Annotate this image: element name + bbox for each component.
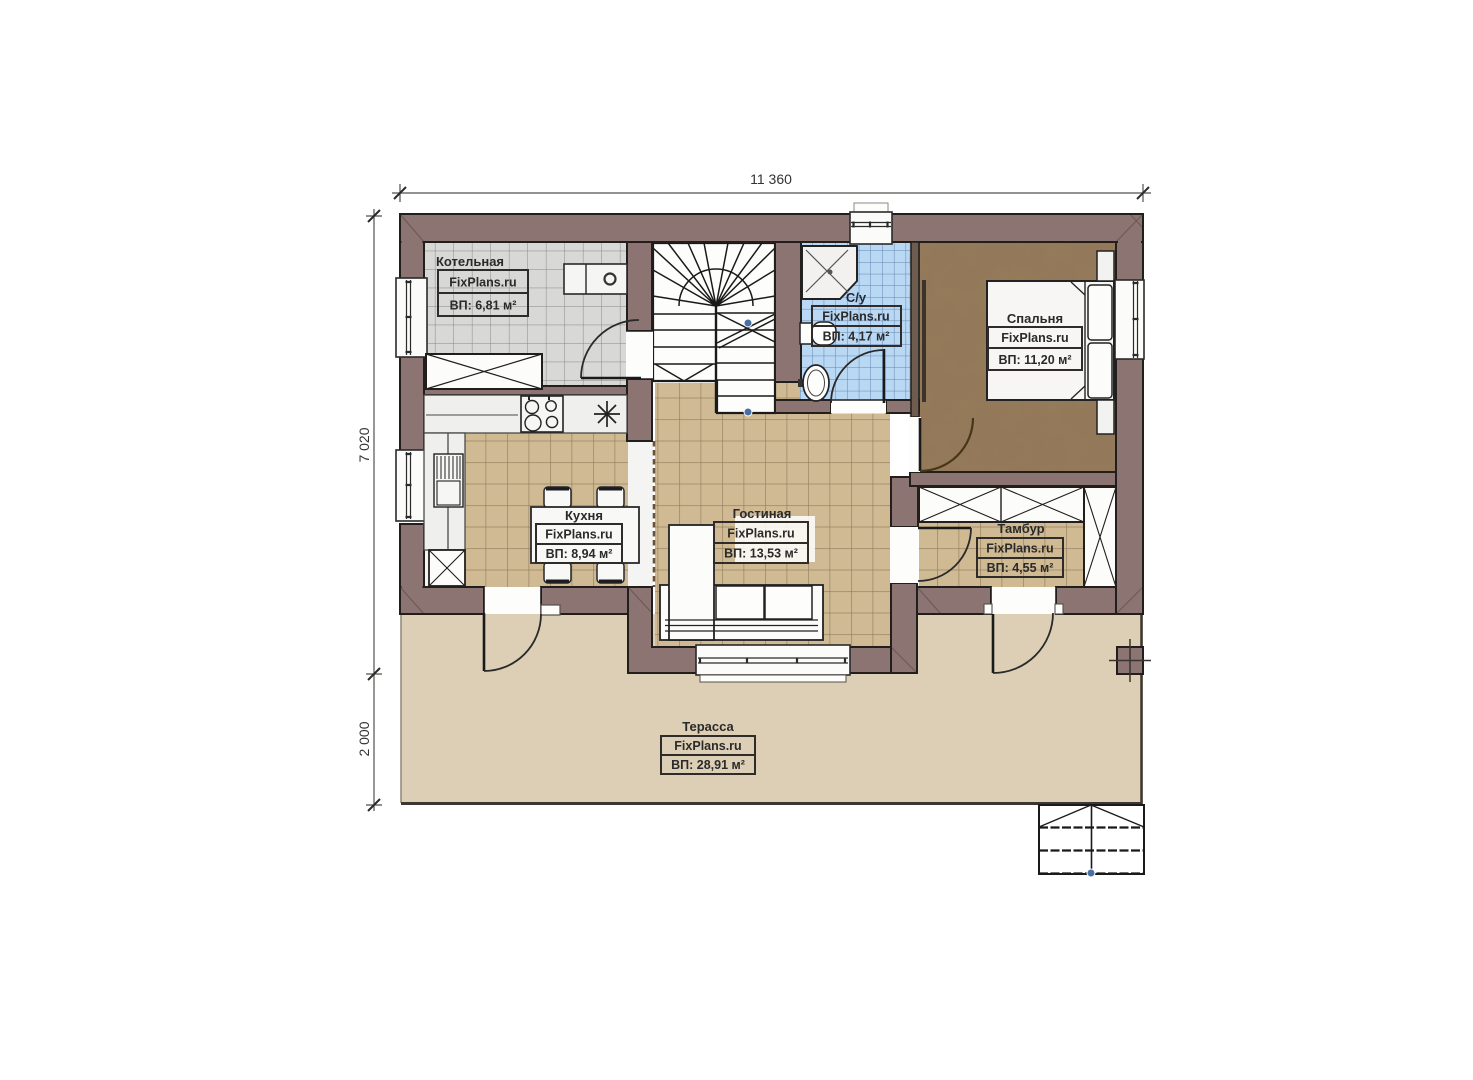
svg-text:Спальня: Спальня [1007,311,1063,326]
svg-text:ВП: 4,17 м²: ВП: 4,17 м² [823,330,890,344]
svg-text:7 020: 7 020 [356,427,372,462]
svg-text:ВП: 6,81 м²: ВП: 6,81 м² [450,299,517,313]
svg-text:FixPlans.ru: FixPlans.ru [822,310,889,324]
svg-text:FixPlans.ru: FixPlans.ru [727,527,794,541]
svg-text:Котельная: Котельная [436,254,504,269]
svg-text:ВП: 8,94 м²: ВП: 8,94 м² [546,547,613,561]
svg-text:FixPlans.ru: FixPlans.ru [1001,331,1068,345]
svg-text:Тамбур: Тамбур [997,521,1044,536]
svg-text:FixPlans.ru: FixPlans.ru [545,528,612,542]
svg-text:2 000: 2 000 [356,721,372,756]
svg-text:Гостиная: Гостиная [733,506,792,521]
svg-text:С/у: С/у [846,290,867,305]
svg-text:Кухня: Кухня [565,508,603,523]
svg-text:FixPlans.ru: FixPlans.ru [986,542,1053,556]
svg-text:FixPlans.ru: FixPlans.ru [674,739,741,753]
svg-text:ВП: 11,20 м²: ВП: 11,20 м² [998,353,1071,367]
svg-text:Терасса: Терасса [682,719,734,734]
svg-text:FixPlans.ru: FixPlans.ru [449,276,516,290]
svg-text:11 360: 11 360 [750,171,792,187]
svg-text:ВП: 4,55 м²: ВП: 4,55 м² [987,561,1054,575]
svg-text:ВП: 13,53 м²: ВП: 13,53 м² [724,547,798,561]
svg-text:ВП: 28,91 м²: ВП: 28,91 м² [671,758,745,772]
